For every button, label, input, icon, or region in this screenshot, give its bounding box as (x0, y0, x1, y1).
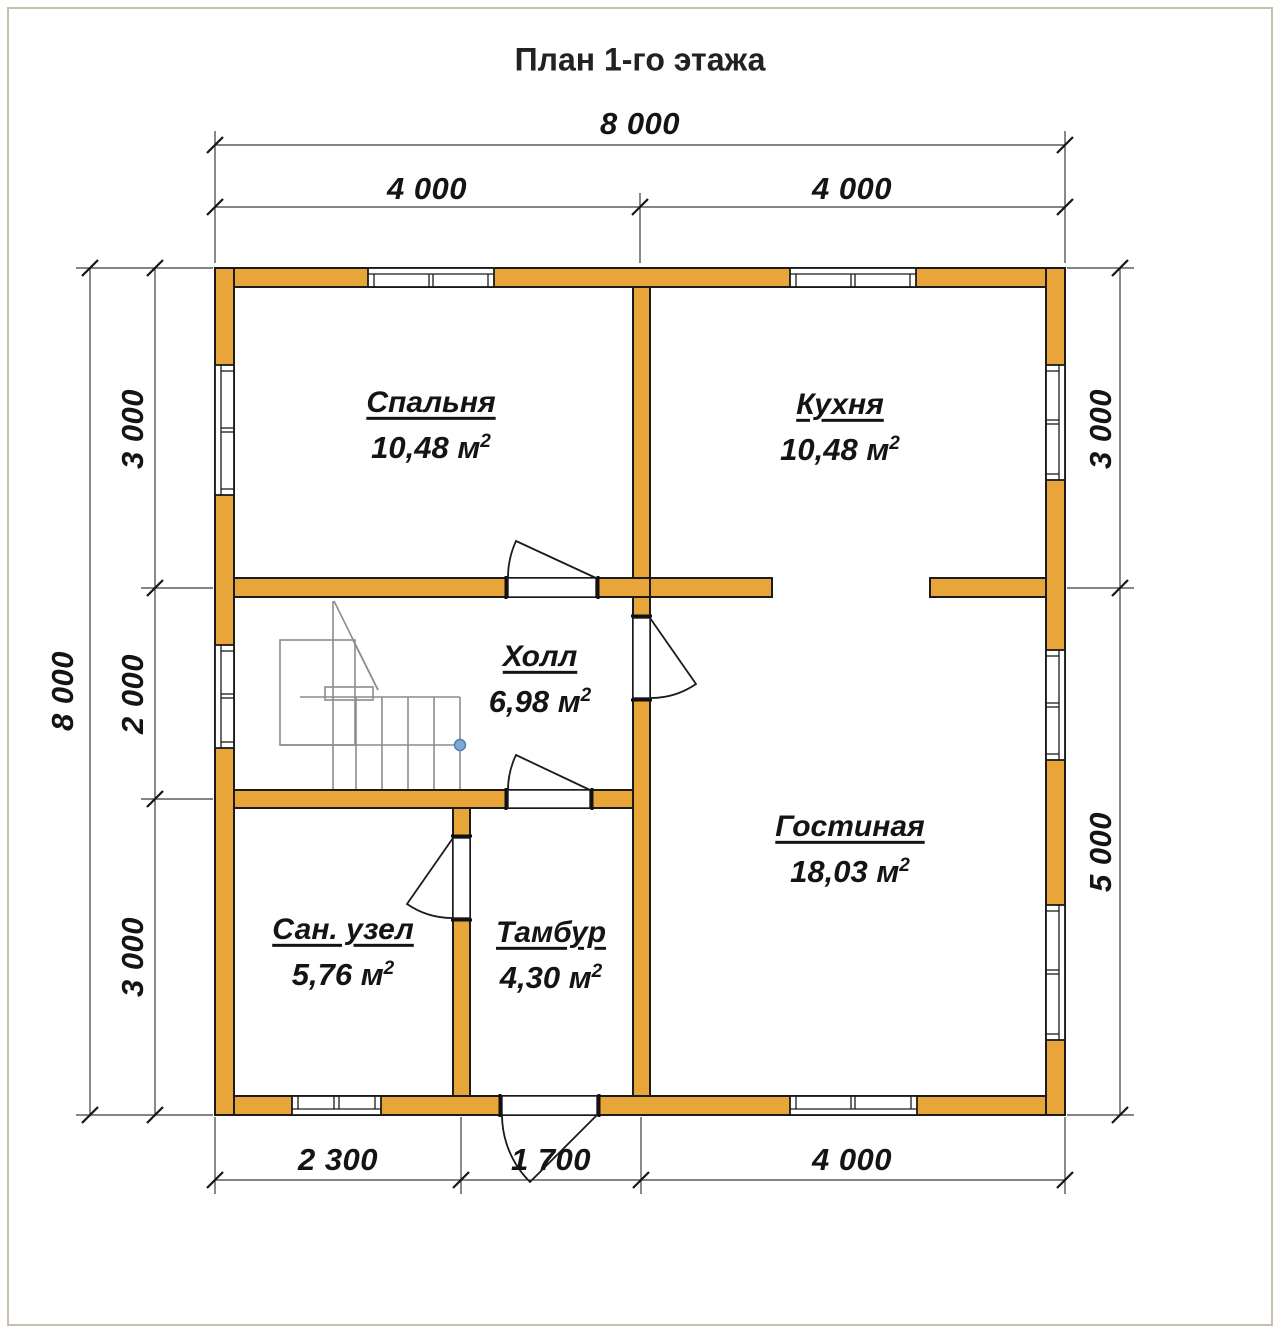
room-hall-area: 6,98 м2 (489, 675, 591, 723)
dim-left-total: 8 000 (45, 651, 81, 731)
window-living-bottom (790, 1096, 917, 1115)
window-kitchen-right (1046, 365, 1065, 480)
page-title: План 1-го этажа (515, 42, 766, 79)
room-area-sup: 2 (480, 431, 491, 452)
room-vestibule-name: Тамбур (496, 915, 606, 951)
window-kitchen-top (790, 268, 916, 287)
room-area-value: 5,76 м (292, 957, 384, 992)
room-vestibule-area: 4,30 м2 (496, 951, 606, 999)
room-bedroom-area: 10,48 м2 (366, 421, 495, 469)
dim-top-total: 8 000 (600, 106, 680, 142)
door-bathroom (407, 836, 472, 920)
dim-right-seg2: 5 000 (1083, 812, 1119, 892)
door-hall-vestibule (506, 755, 592, 810)
room-area-value: 10,48 м (371, 430, 480, 465)
window-bedroom-left (215, 365, 234, 495)
room-hall-name: Холл (489, 639, 591, 675)
window-bathroom-bottom (292, 1096, 381, 1115)
floor-plan-svg (0, 0, 1280, 1333)
room-kitchen-label: Кухня 10,48 м2 (780, 387, 900, 471)
wall-kitchen-living-right-stub (930, 578, 1046, 597)
room-area-value: 4,30 м (500, 960, 592, 995)
wall-exterior-top (215, 268, 1065, 287)
room-living-name: Гостиная (775, 809, 924, 845)
dim-top-left: 4 000 (387, 171, 467, 207)
room-living-label: Гостиная 18,03 м2 (775, 809, 924, 893)
dim-top-right: 4 000 (812, 171, 892, 207)
dim-left-seg3: 3 000 (115, 917, 151, 997)
room-area-value: 10,48 м (780, 432, 889, 467)
room-area-sup: 2 (889, 433, 900, 454)
window-hall-left (215, 645, 234, 748)
dim-right-seg1: 3 000 (1083, 389, 1119, 469)
dim-bottom-seg3: 4 000 (812, 1142, 892, 1178)
room-living-area: 18,03 м2 (775, 845, 924, 893)
window-bedroom-top (368, 268, 494, 287)
door-hall-living (631, 616, 696, 700)
staircase (280, 601, 466, 789)
room-bathroom-area: 5,76 м2 (272, 948, 414, 996)
dim-bottom-seg2: 1 700 (511, 1142, 591, 1178)
dim-left-seg2: 2 000 (115, 654, 151, 734)
room-kitchen-area: 10,48 м2 (780, 423, 900, 471)
room-kitchen-name: Кухня (780, 387, 900, 423)
room-area-sup: 2 (899, 855, 910, 876)
floor-plan-page: План 1-го этажа 8 000 4 000 4 000 8 000 … (0, 0, 1280, 1333)
stair-newel-dot (455, 740, 466, 751)
room-area-value: 6,98 м (489, 684, 581, 719)
room-bedroom-label: Спальня 10,48 м2 (366, 385, 495, 469)
room-hall-label: Холл 6,98 м2 (489, 639, 591, 723)
room-bathroom-name: Сан. узел (272, 912, 414, 948)
room-area-sup: 2 (581, 685, 592, 706)
door-bedroom (506, 541, 598, 599)
room-bedroom-name: Спальня (366, 385, 495, 421)
room-area-sup: 2 (592, 961, 603, 982)
window-living-right-lower (1046, 905, 1065, 1040)
room-area-sup: 2 (384, 958, 395, 979)
window-living-right-upper (1046, 650, 1065, 760)
dim-left-seg1: 3 000 (115, 389, 151, 469)
wall-kitchen-living-left-stub (650, 578, 772, 597)
room-area-value: 18,03 м (790, 854, 899, 889)
room-vestibule-label: Тамбур 4,30 м2 (496, 915, 606, 999)
dim-bottom-seg1: 2 300 (298, 1142, 378, 1178)
room-bathroom-label: Сан. узел 5,76 м2 (272, 912, 414, 996)
